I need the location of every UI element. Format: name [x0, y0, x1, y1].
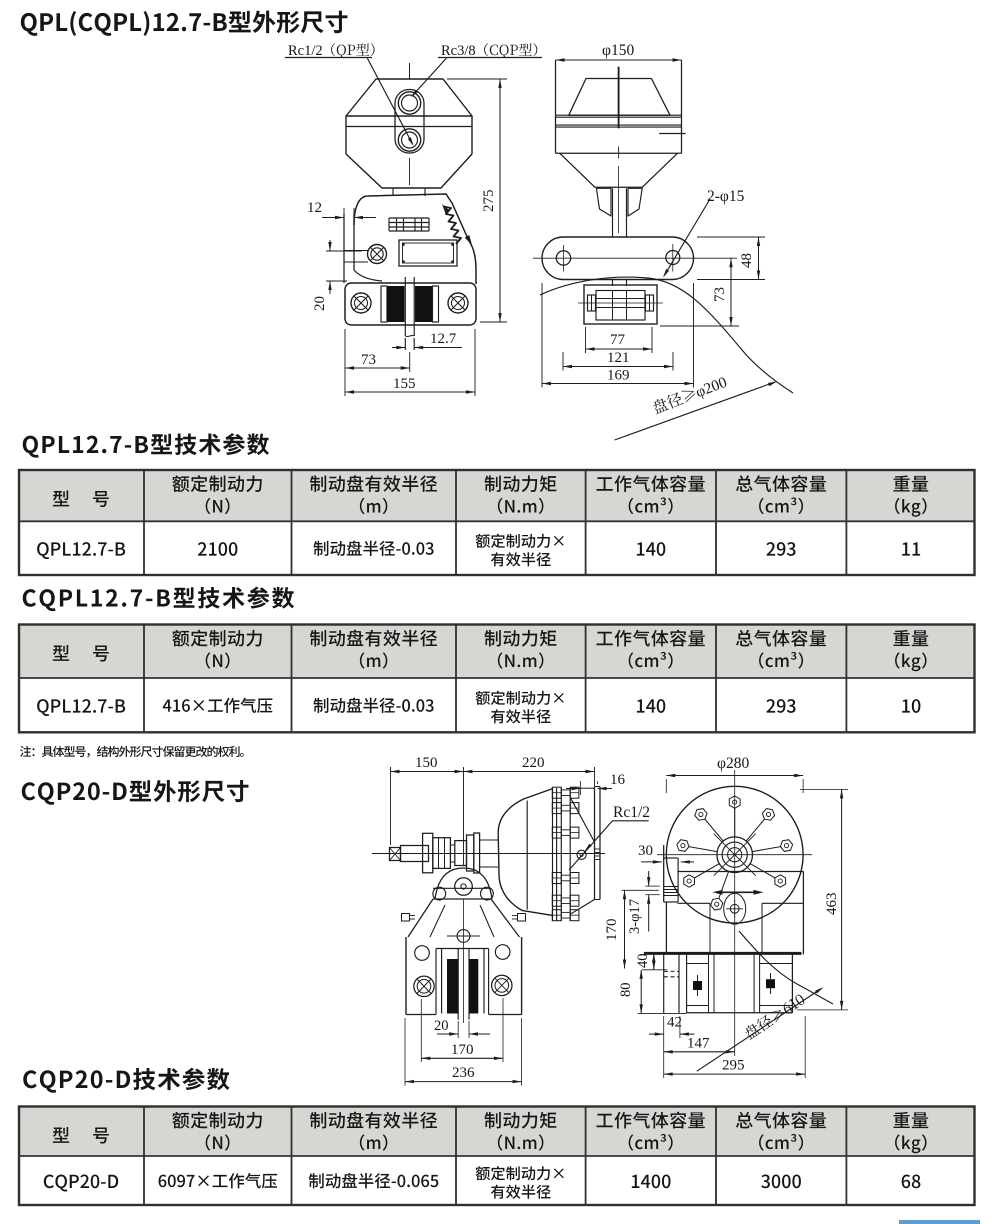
svg-text:Rc1/2: Rc1/2: [288, 43, 323, 59]
svg-text:20: 20: [434, 1018, 449, 1034]
svg-text:170: 170: [604, 919, 620, 942]
svg-text:155: 155: [393, 376, 416, 392]
svg-text:16: 16: [610, 772, 626, 788]
svg-text:12: 12: [307, 200, 322, 216]
svg-text:169: 169: [607, 368, 630, 384]
svg-text:Rc1/2: Rc1/2: [613, 804, 650, 821]
svg-text:463: 463: [824, 893, 840, 916]
svg-text:φ150: φ150: [602, 42, 634, 59]
svg-text:φ280: φ280: [717, 755, 749, 772]
svg-text:12.7: 12.7: [430, 331, 457, 347]
svg-text:30: 30: [638, 843, 653, 859]
svg-text:80: 80: [618, 983, 634, 998]
svg-text:150: 150: [415, 755, 438, 771]
svg-text:147: 147: [687, 1036, 710, 1052]
svg-text:Rc3/8: Rc3/8: [441, 43, 476, 59]
svg-text:3-φ17: 3-φ17: [627, 899, 643, 934]
svg-text:220: 220: [522, 755, 545, 771]
svg-text:40: 40: [635, 954, 651, 969]
svg-text:275: 275: [481, 190, 497, 213]
svg-text:295: 295: [722, 1058, 745, 1074]
svg-text:236: 236: [452, 1065, 475, 1081]
svg-text:121: 121: [607, 350, 630, 366]
svg-text:73: 73: [361, 352, 376, 368]
svg-text:170: 170: [451, 1042, 474, 1058]
svg-text:73: 73: [712, 287, 728, 302]
svg-text:77: 77: [610, 332, 626, 348]
svg-text:20: 20: [312, 296, 328, 311]
svg-text:2-φ15: 2-φ15: [707, 188, 745, 205]
svg-text:48: 48: [739, 253, 755, 268]
svg-text:φ200: φ200: [693, 374, 729, 401]
